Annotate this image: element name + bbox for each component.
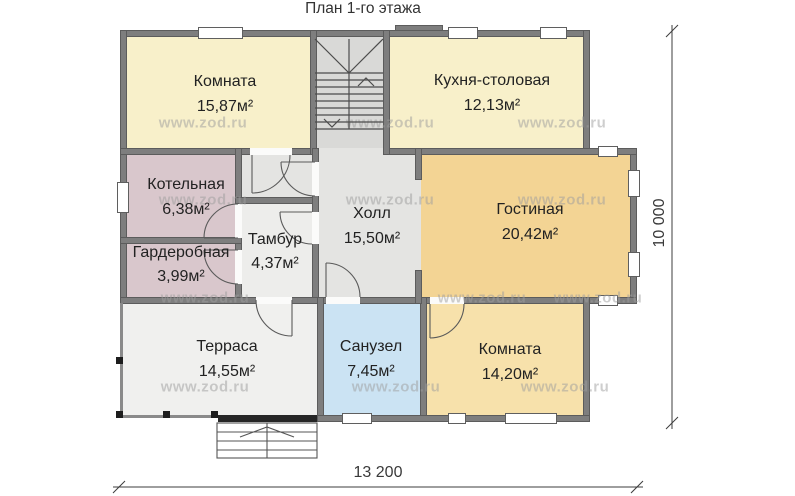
railing-post [116,411,123,418]
room-label-bedroom-bottom: Комната 14,20м² [479,337,542,387]
dimension-width-label: 13 200 [354,464,403,482]
room-label-bathroom: Санузел 7,45м² [340,334,402,384]
wall [120,30,127,304]
room-area: 15,87м² [197,98,253,115]
staircase-area [310,34,387,152]
window [628,252,640,277]
room-label-vestibule: Тамбур 4,37м² [248,228,302,276]
railing-post [163,411,170,418]
room-area: 12,13м² [464,97,520,114]
room-name: Кухня-столовая [434,72,550,89]
room-name: Котельная [147,176,224,193]
room-area: 14,55м² [199,363,255,380]
wall [583,297,590,422]
room-area: 20,42м² [502,226,558,243]
door-opening [326,297,360,304]
room-label-boiler: Котельная 6,38м² [147,172,224,222]
dimension-height-label: 10 000 [651,199,669,248]
window [198,27,243,39]
room-name: Гардеробная [133,244,230,261]
room-name: Терраса [196,338,257,355]
watermark: www.zod.ru [438,290,527,307]
room-name: Комната [194,73,257,90]
watermark: www.zod.ru [161,290,250,307]
window [628,170,640,197]
window [505,413,557,424]
wall [415,148,422,180]
wall [310,30,317,155]
room-name: Комната [479,341,542,358]
terrace-edge [218,415,317,422]
room-area: 4,37м² [251,255,298,272]
railing-post [116,357,123,364]
railing-post [211,411,218,418]
wall [415,270,422,304]
room-label-hall: Холл 15,50м² [344,201,400,251]
room-name: Холл [353,205,391,222]
window [540,27,567,39]
door-opening [235,204,242,238]
door-opening [312,212,319,244]
room-name: Тамбур [248,231,302,248]
door-opening [235,250,242,284]
room-area: 7,45м² [347,363,394,380]
door-opening [312,162,319,196]
room-area: 3,99м² [157,268,204,285]
room-label-bedroom-top-left: Комната 15,87м² [194,69,257,119]
room-label-kitchen: Кухня-столовая 12,13м² [434,68,550,118]
watermark: www.zod.ru [554,290,643,307]
hall-lobe-area [239,151,315,201]
window [342,413,372,424]
room-name: Санузел [340,338,402,355]
room-label-terrace: Терраса 14,55м² [196,334,257,384]
wall [383,30,390,155]
wall [317,297,324,422]
entrance-steps-icon [217,423,317,458]
room-label-living: Гостиная 20,42м² [496,197,563,247]
window [598,146,618,157]
room-label-wardrobe: Гардеробная 3,99м² [133,241,230,289]
wall [583,30,590,155]
wall [420,297,427,422]
room-area: 15,50м² [344,230,400,247]
wall [120,30,590,37]
door-opening [256,297,292,304]
terrace-railing [120,415,220,418]
window [448,413,466,424]
watermark: www.zod.ru [346,115,435,132]
window [117,182,129,213]
room-name: Гостиная [496,201,563,218]
window [448,27,478,39]
door-opening [250,148,292,155]
room-area: 14,20м² [482,366,538,383]
room-area: 6,38м² [162,201,209,218]
page-title: План 1-го этажа [305,0,421,18]
floor-plan: План 1-го этажа www.zod.ru www.zod.ru ww… [0,0,795,496]
